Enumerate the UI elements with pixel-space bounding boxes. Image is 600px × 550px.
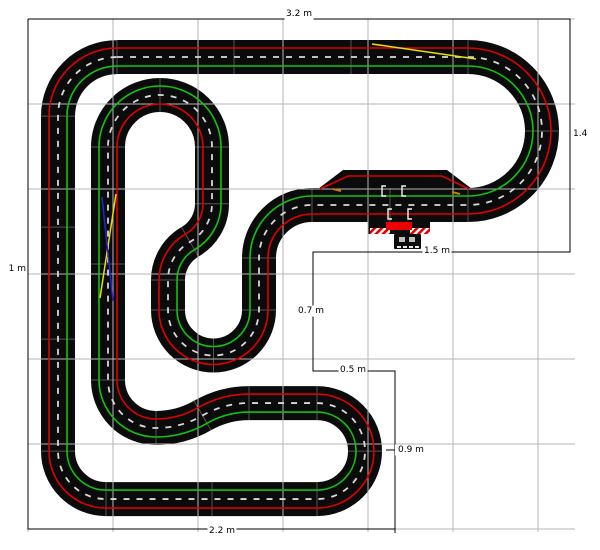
dimension-label: 1.5 m bbox=[424, 246, 450, 256]
track-design-canvas-wrapper: 3.2 m1.41.5 m0.7 m0.5 m0.9 m2.2 m1 m bbox=[0, 0, 600, 550]
power-base-dash bbox=[397, 246, 401, 248]
dimension-label: 1.4 bbox=[573, 129, 588, 139]
power-base-dash bbox=[409, 246, 413, 248]
track-designer-canvas[interactable]: 3.2 m1.41.5 m0.7 m0.5 m0.9 m2.2 m1 m bbox=[0, 0, 600, 550]
power-base-pad bbox=[399, 237, 405, 242]
dimension-label: 0.7 m bbox=[298, 306, 324, 316]
dimension-label: 0.5 m bbox=[340, 365, 366, 375]
power-base-pad bbox=[409, 237, 415, 242]
start-light-bar bbox=[386, 222, 412, 230]
power-base-dash bbox=[415, 246, 419, 248]
dimension-label: 0.9 m bbox=[398, 445, 424, 455]
dimension-label: 1 m bbox=[9, 264, 26, 274]
dimension-label: 2.2 m bbox=[209, 526, 235, 536]
dimension-label: 3.2 m bbox=[286, 9, 312, 19]
power-base-dash bbox=[403, 246, 407, 248]
start-stripe-right bbox=[410, 228, 430, 234]
